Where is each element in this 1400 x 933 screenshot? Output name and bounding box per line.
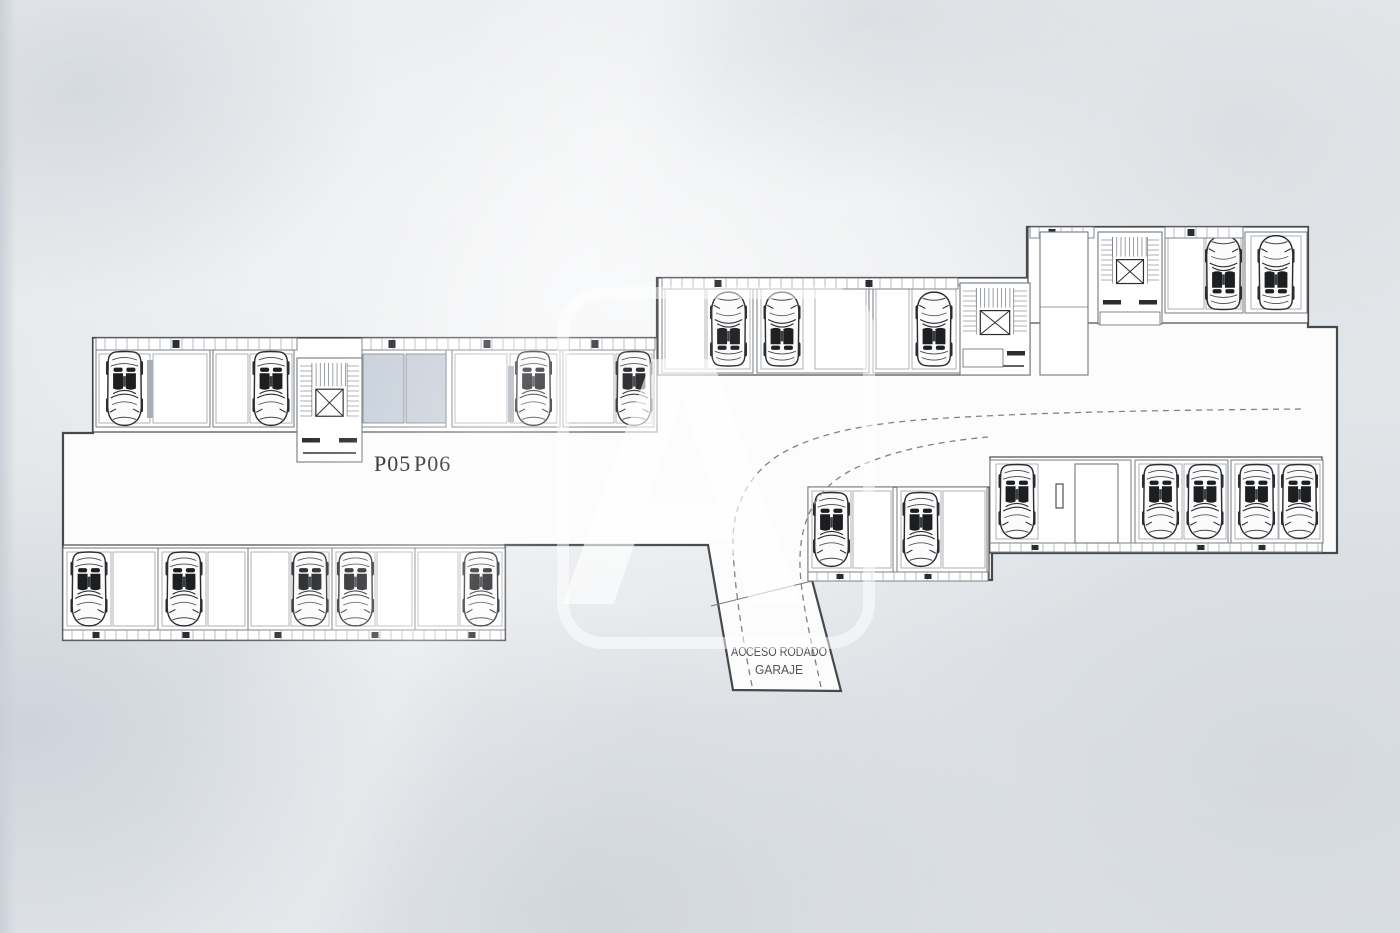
car-icon	[1281, 464, 1318, 538]
storage-lockers-strip	[990, 543, 1322, 552]
door-mark	[389, 340, 396, 348]
car-icon	[165, 552, 202, 626]
storage-lockers-strip	[96, 338, 297, 350]
car-icon	[1257, 236, 1294, 310]
door-mark	[173, 340, 180, 348]
storage-lockers-strip	[1165, 227, 1243, 238]
storage-lockers-strip	[362, 338, 655, 350]
ramp-label-line2: GARAJE	[755, 663, 803, 677]
utility-room	[1075, 464, 1118, 543]
car-icon	[337, 552, 374, 626]
car-icon	[1205, 236, 1242, 310]
parking-spot-highlighted	[406, 354, 446, 423]
storage-lockers-strip	[63, 630, 505, 640]
door	[1056, 484, 1063, 508]
car-icon	[902, 492, 939, 566]
stair-landing	[1100, 312, 1160, 325]
car-icon	[1238, 464, 1275, 538]
car-icon	[252, 351, 289, 425]
spot-label-p05: P05	[374, 451, 411, 476]
door-mark	[1198, 545, 1205, 550]
storage-lockers-strip	[808, 572, 988, 581]
car-icon	[710, 292, 747, 366]
floorplan-canvas: P05 P06 ACCESO RODADO GARAJE A	[0, 0, 1400, 933]
door-mark	[715, 280, 722, 287]
car-icon	[70, 552, 107, 626]
door-mark	[469, 632, 476, 638]
door-mark	[1032, 545, 1039, 550]
stairwell-icon	[297, 358, 362, 462]
car-icon	[1186, 464, 1223, 538]
pillar	[508, 366, 514, 422]
door-mark	[1188, 229, 1195, 236]
car-icon	[915, 292, 952, 366]
door-mark	[275, 632, 282, 638]
car-icon	[515, 351, 552, 425]
door-mark	[93, 632, 100, 638]
car-icon	[813, 492, 850, 566]
door-mark	[866, 280, 873, 287]
spot-label-p06: P06	[414, 451, 451, 476]
car-icon	[106, 351, 143, 425]
car-icon	[462, 552, 499, 626]
car-icon	[291, 552, 328, 626]
stairwell-icon	[1098, 232, 1162, 324]
door-mark	[837, 574, 844, 579]
car-icon	[1142, 464, 1179, 538]
ramp-label-line1: ACCESO RODADO	[731, 645, 827, 659]
door-mark	[372, 632, 379, 638]
utility-room	[1040, 232, 1088, 375]
pillar	[147, 360, 153, 418]
car-icon	[763, 292, 800, 366]
parking-spot-highlighted	[363, 354, 404, 423]
stair-landing	[963, 349, 1003, 367]
storage-lockers-strip	[662, 278, 958, 289]
door-mark	[183, 632, 190, 638]
garage-floorplan-svg: P05 P06 ACCESO RODADO GARAJE	[0, 0, 1400, 933]
door-mark	[592, 340, 599, 348]
car-icon	[615, 351, 652, 425]
car-icon	[998, 464, 1035, 538]
door-mark	[925, 574, 932, 579]
door-mark	[484, 340, 491, 348]
door-mark	[1259, 545, 1266, 550]
